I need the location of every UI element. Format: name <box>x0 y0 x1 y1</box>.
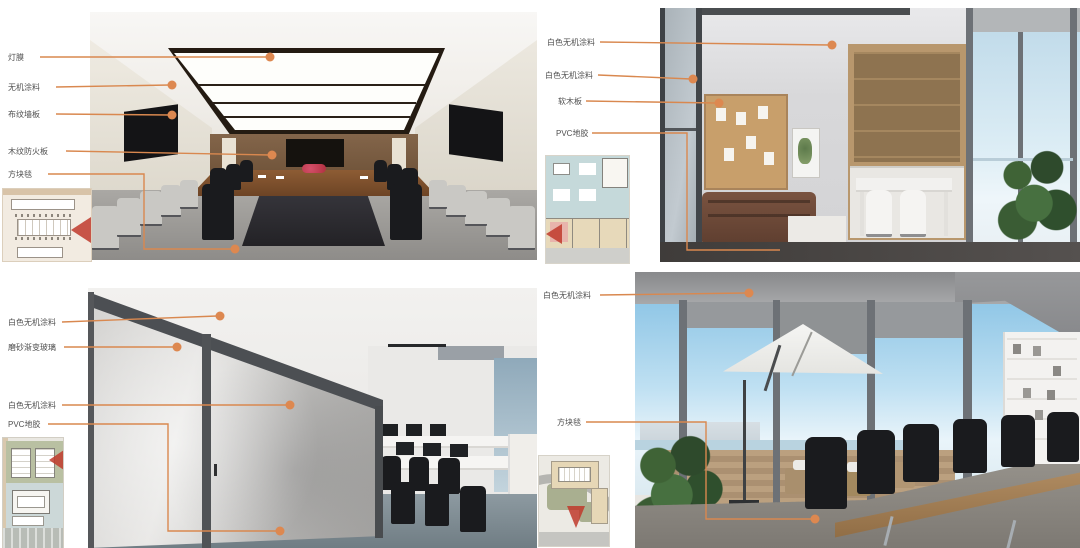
floorplan-inset-conference <box>2 188 92 262</box>
plan-desk-rows <box>11 448 31 478</box>
plan-small-room <box>602 158 628 188</box>
window-mullion <box>773 300 780 504</box>
render-terrace-office <box>635 272 1080 548</box>
white-chair <box>866 190 892 237</box>
location-arrow-icon <box>49 450 64 470</box>
monitor-row <box>396 442 414 455</box>
floorplan-inset-executive <box>545 155 630 264</box>
chair-shape <box>1047 412 1079 462</box>
ceiling-bar <box>213 102 416 104</box>
ceiling-slot <box>696 8 910 15</box>
annotation-label: 灯膜 <box>8 53 24 62</box>
render-conference-room <box>90 12 537 260</box>
desk-legs <box>860 192 864 236</box>
chair-shape <box>425 484 449 526</box>
chair-shape <box>202 184 234 240</box>
bookshelf-shelves <box>854 52 960 162</box>
chair-shape <box>508 206 535 250</box>
chair-shape <box>465 191 487 226</box>
annotation-label: 软木板 <box>558 97 582 106</box>
parasol-pole <box>743 380 746 502</box>
plan-table <box>17 247 63 258</box>
ceiling-bar <box>198 84 425 86</box>
partition-frame <box>88 292 94 548</box>
location-arrow-icon <box>71 217 91 243</box>
plan-wall <box>3 189 91 195</box>
glass-blur-sheen <box>88 288 383 548</box>
chair-shape <box>857 430 895 494</box>
white-chair <box>900 190 926 237</box>
roller-shade <box>873 302 963 338</box>
annotation-label: 无机涂料 <box>8 83 40 92</box>
chair-shape <box>903 424 939 482</box>
partition-frame <box>375 406 383 538</box>
plan-table <box>11 199 75 210</box>
plan-table <box>12 516 44 526</box>
frosted-glass-partition <box>88 288 383 548</box>
render-open-office <box>88 288 537 548</box>
annotation-label: 白色无机涂料 <box>8 401 56 410</box>
chair-shape <box>180 180 198 209</box>
sofa-seams <box>708 200 810 203</box>
back-screen <box>286 139 344 167</box>
location-arrow-icon <box>546 224 562 244</box>
monitor-row <box>382 424 398 436</box>
art-leaves <box>798 138 812 164</box>
door-frame <box>660 8 665 262</box>
dark-floor <box>660 242 1080 262</box>
pinned-notes <box>716 108 726 121</box>
annotation-label: 白色无机涂料 <box>547 38 595 47</box>
annotation-label: PVC地胶 <box>8 420 40 429</box>
annotation-label: 方块毯 <box>557 418 581 427</box>
plan-chair-dots <box>15 214 71 217</box>
chair-shape <box>374 160 387 182</box>
plan-table <box>17 219 71 236</box>
potted-plant <box>990 136 1080 248</box>
partition-mullion <box>202 334 211 548</box>
door-rail <box>665 128 696 131</box>
plan-road-band <box>539 532 609 546</box>
side-tv-screen <box>124 104 178 162</box>
annotation-label: 白色无机涂料 <box>545 71 593 80</box>
chair-shape <box>391 482 415 524</box>
annotation-label: PVC地胶 <box>556 129 588 138</box>
floorplan-inset-open-office <box>2 437 64 548</box>
floorplan-inset-terrace <box>538 455 610 547</box>
render-executive-office <box>660 8 1080 262</box>
door-handle <box>214 464 217 476</box>
chair-shape <box>805 437 847 509</box>
annotation-label: 白色无机涂料 <box>543 291 591 300</box>
chair-shape <box>92 206 119 250</box>
location-arrow-icon <box>567 506 585 528</box>
roller-shade <box>966 8 1080 32</box>
chair-shape <box>953 419 987 473</box>
chair-shape <box>460 486 486 532</box>
plan-stair-zone <box>3 528 63 548</box>
luminous-ceiling <box>160 46 452 138</box>
plan-room <box>591 488 608 524</box>
shelf-frames <box>1013 344 1021 354</box>
chair-shape <box>390 184 422 240</box>
annotation-label: 磨砂渐变玻璃 <box>8 343 56 352</box>
storage-cabinet <box>508 434 537 498</box>
annotation-label: 方块毯 <box>8 170 32 179</box>
plan-table <box>558 467 591 482</box>
roller-shade <box>685 302 773 328</box>
chair-shape <box>429 180 447 209</box>
annotation-label: 木纹防火板 <box>8 147 48 156</box>
chair-shape <box>140 191 162 226</box>
flower-centerpiece <box>302 164 326 173</box>
chair-shape <box>117 198 141 237</box>
chair-shape <box>240 160 253 182</box>
chair-shape <box>486 198 510 237</box>
side-tv-screen <box>449 104 503 162</box>
design-board: 灯膜 无机涂料 布纹墙板 木纹防火板 方块毯 白色无机涂料 白色无机涂料 软木板… <box>0 0 1080 548</box>
plan-corridor <box>546 248 629 263</box>
ceiling-bar <box>224 116 410 118</box>
window-mullion <box>966 8 973 262</box>
linear-pendant-light <box>388 344 446 347</box>
chair-shape <box>446 185 466 217</box>
plan-chair-dots <box>15 237 71 240</box>
plan-desk-cluster <box>553 163 570 175</box>
chair-shape <box>161 185 181 217</box>
annotation-label: 白色无机涂料 <box>8 318 56 327</box>
conference-table-base <box>242 196 385 246</box>
annotation-label: 布纹墙板 <box>8 110 40 119</box>
chair-shape <box>1001 415 1035 467</box>
plan-table <box>17 496 45 508</box>
